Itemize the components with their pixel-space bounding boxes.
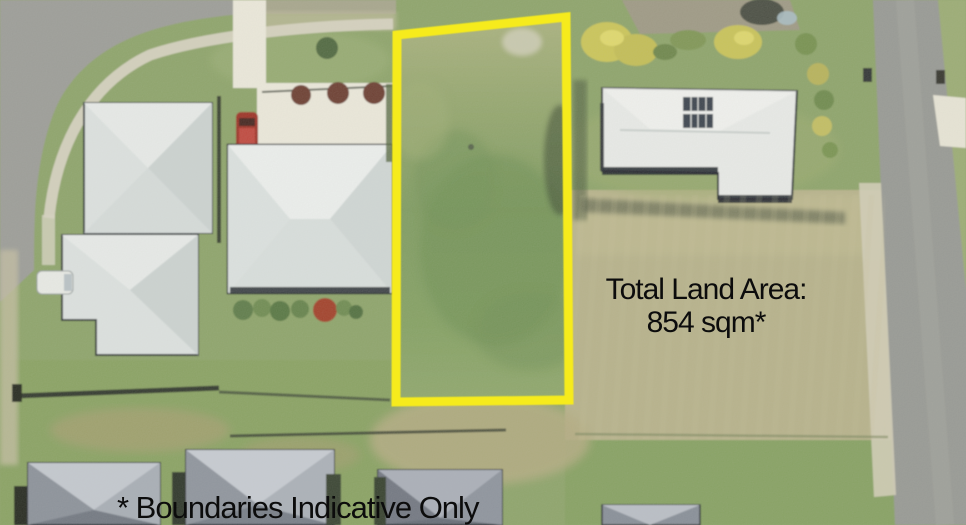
- aerial-photo-listing: Total Land Area: 854 sqm* * Boundaries I…: [0, 0, 966, 525]
- land-area-annotation: Total Land Area: 854 sqm*: [548, 273, 864, 339]
- land-area-line2: 854 sqm*: [548, 306, 864, 339]
- land-area-line1: Total Land Area:: [548, 273, 864, 306]
- photo-grain: [0, 0, 966, 525]
- aerial-photo: [0, 0, 966, 525]
- boundaries-disclaimer: * Boundaries Indicative Only: [117, 490, 478, 525]
